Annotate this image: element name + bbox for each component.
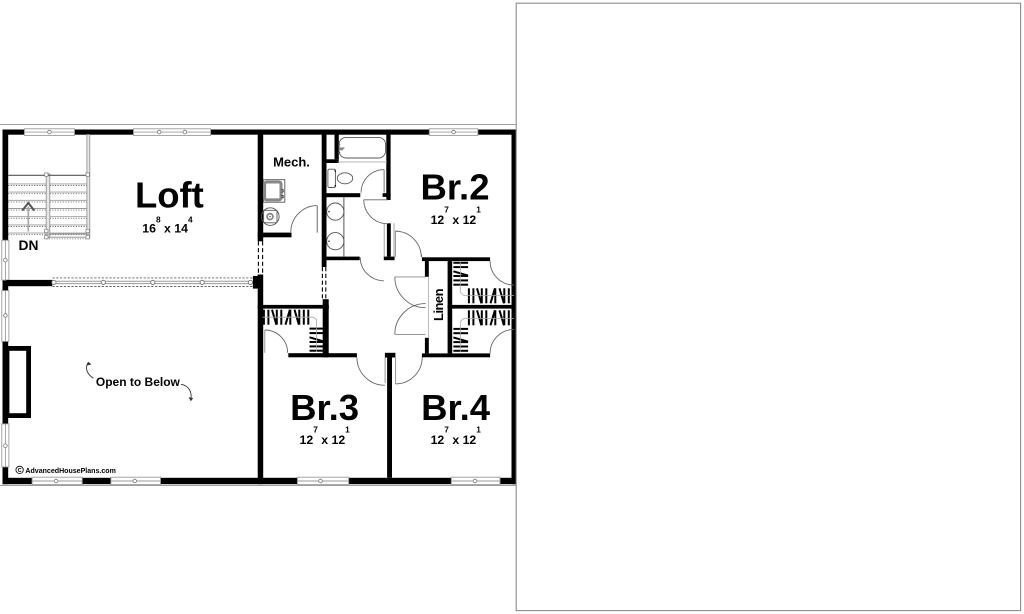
svg-text:Br.3: Br.3 [290, 387, 359, 428]
svg-text:Mech.: Mech. [273, 154, 310, 169]
svg-text:C: C [18, 468, 22, 474]
svg-text:DN: DN [19, 238, 39, 253]
svg-text:Linen: Linen [431, 288, 446, 321]
svg-text:Br.2: Br.2 [421, 167, 490, 208]
svg-text:Open to Below: Open to Below [96, 375, 181, 389]
svg-text:Loft: Loft [135, 175, 204, 216]
svg-text:AdvancedHousePlans.com: AdvancedHousePlans.com [25, 468, 115, 475]
svg-text:Br.4: Br.4 [421, 387, 491, 428]
